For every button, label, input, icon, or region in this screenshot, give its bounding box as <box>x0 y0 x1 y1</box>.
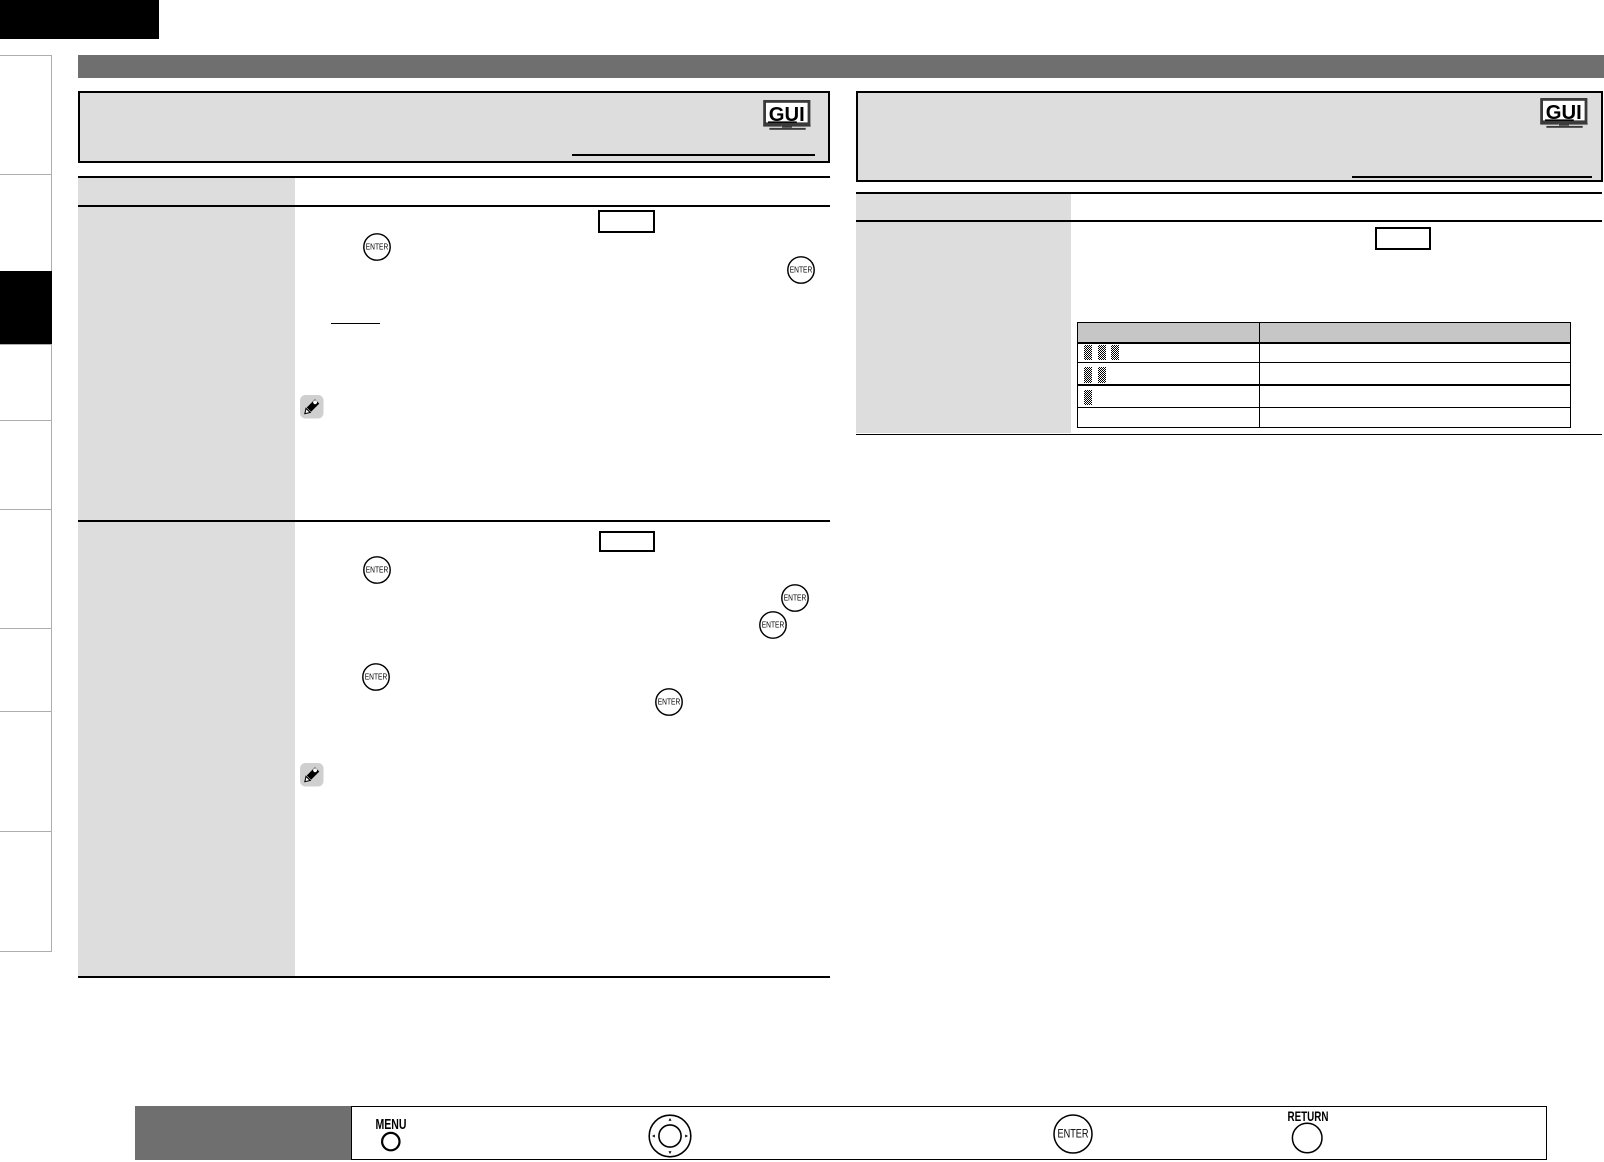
svg-text:ENTER: ENTER <box>658 697 681 706</box>
svg-text:ENTER: ENTER <box>784 594 807 603</box>
svg-text:ENTER: ENTER <box>790 266 813 275</box>
svg-text:ENTER: ENTER <box>1058 1129 1089 1141</box>
svg-text:ENTER: ENTER <box>366 242 389 251</box>
svg-text:ENTER: ENTER <box>366 566 389 575</box>
svg-text:ENTER: ENTER <box>365 672 388 681</box>
svg-text:ENTER: ENTER <box>762 621 785 630</box>
